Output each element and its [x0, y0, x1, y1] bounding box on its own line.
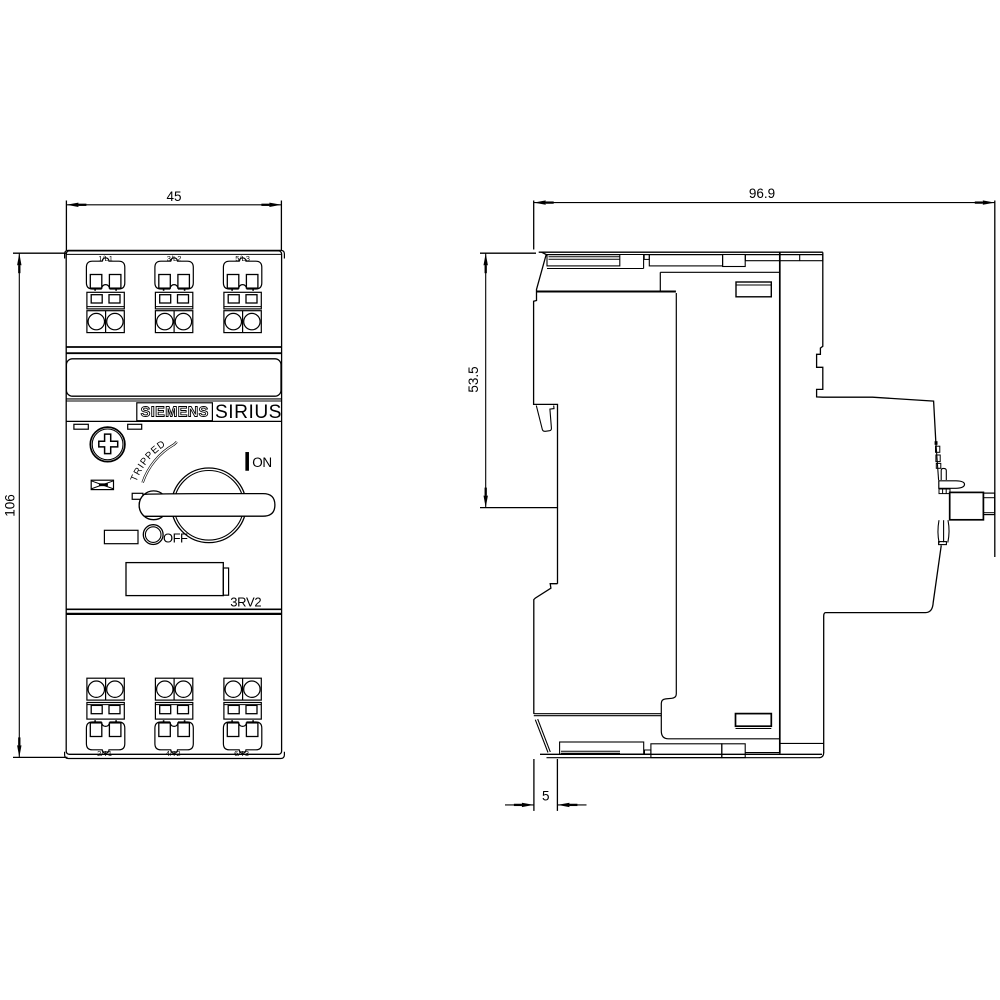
- svg-text:3/L2: 3/L2: [167, 254, 182, 263]
- svg-text:6/T3: 6/T3: [234, 749, 249, 758]
- svg-text:106: 106: [2, 494, 17, 517]
- svg-text:4/T2: 4/T2: [166, 749, 181, 758]
- svg-text:OFF: OFF: [163, 530, 188, 545]
- svg-text:1/L1: 1/L1: [98, 254, 113, 263]
- svg-text:5/L3: 5/L3: [235, 254, 250, 263]
- svg-text:ON: ON: [252, 455, 271, 470]
- svg-text:53.5: 53.5: [466, 366, 481, 392]
- svg-text:SIEMENS: SIEMENS: [141, 405, 209, 421]
- svg-text:45: 45: [166, 189, 181, 204]
- svg-text:SIRIUS: SIRIUS: [215, 402, 282, 423]
- svg-text:96.9: 96.9: [749, 186, 775, 201]
- svg-text:2/T1: 2/T1: [97, 749, 112, 758]
- svg-text:3RV2: 3RV2: [230, 595, 261, 610]
- svg-text:5: 5: [542, 789, 550, 804]
